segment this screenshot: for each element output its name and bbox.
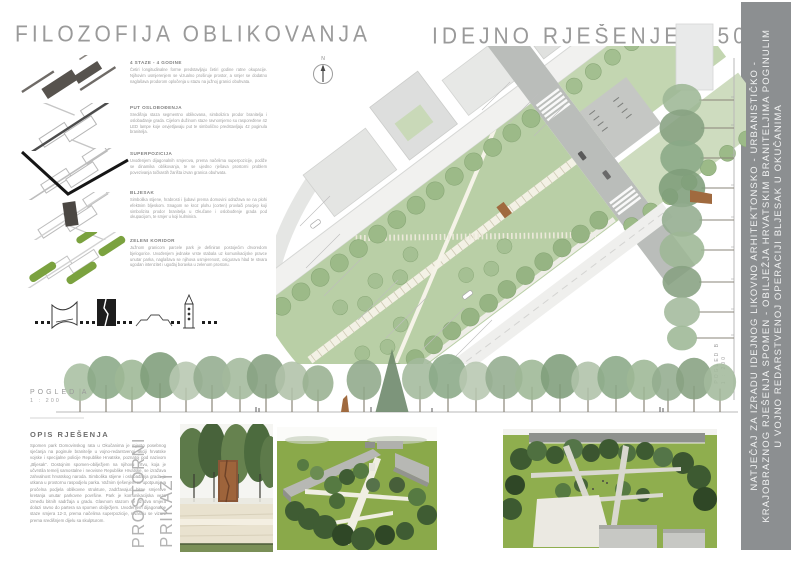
render-aerial-1 [277,427,437,550]
monument-solid-icon [97,299,116,326]
concept-diagram-5-zeleni-koridor [12,232,132,288]
section-heading: 4 STAZE - 4 GODINE [130,60,267,65]
concept-diagram-1-staze [12,55,132,107]
section-body: Južnom granicom parcele park je definira… [130,245,267,268]
section-heading: PUT OSLOBOĐENJA [130,105,267,110]
renders-label: PROSTORNI PRIKAZI [130,444,177,548]
north-arrow-icon: N [314,56,333,84]
tree-row-b [659,84,734,351]
church-tower-icon [183,295,195,328]
elevation-a [0,348,742,420]
banner-line-1: NATJEČAJ ZA IZRADU IDEJNOG LIKOVNO ARHIT… [749,61,760,491]
mound-outline-icon [136,315,172,326]
section-body: Uvođenjem dijagonalnih smjerova, prema n… [130,158,267,175]
people-silhouettes [256,407,663,412]
render-monument-view [180,424,273,552]
banner-line-3: U VOJNO REDARSTVENOJ OPERACIJI BLJESAK U… [773,104,784,448]
corten-monument-render [218,460,238,502]
tree-row-a [64,349,736,412]
section-marker [310,219,321,229]
competition-board: FILOZOFIJA OBLIKOVANJA IDEJNO RJEŠENJE 1… [0,0,800,562]
concept-section-bljesak: BLJESAK Simbolika stijene, hrabrosti i l… [130,190,267,220]
corten-monument-elevation-b [690,190,712,204]
concept-section-superpozicija: SUPERPOZICIJA Uvođenjem dijagonalnih smj… [130,151,267,175]
concept-section-staze: 4 STAZE - 4 GODINE Četiri longitudinalne… [130,60,267,84]
page-title-philosophy: FILOZOFIJA OBLIKOVANJA [15,22,371,48]
concept-diagram-2-put [12,103,132,151]
genius-loci-silhouette-strip [12,292,242,338]
render-aerial-2 [503,429,717,548]
road-band [529,433,705,443]
renders-label-line1: PROSTORNI [130,437,150,548]
concept-section-zeleni-koridor: ZELENI KORIDOR Južnom granicom parcele p… [130,238,267,268]
svg-text:N: N [321,56,325,62]
banner-line-2: KRAJOBRAZNOG RJEŠENJA SPOMEN - OBILJEŽJA… [761,29,772,523]
grass-strip [180,544,273,552]
section-body: Četiri longitudinalne forme predstavljaj… [130,67,267,84]
monument-small [369,463,375,471]
plaza [180,504,273,544]
elevation-a-title: POGLED A [30,389,89,396]
section-body: Simbolika stijene, hrabrosti i ljubavi p… [130,197,267,220]
section-heading: ZELENI KORIDOR [130,238,267,243]
monument-outline-icon [52,302,77,328]
competition-banner: NATJEČAJ ZA IZRADU IDEJNOG LIKOVNO ARHIT… [741,2,791,550]
renders-label-line2: PRIKAZI [158,473,178,548]
concept-section-put: PUT OSLOBOĐENJA Središnja staza segmentn… [130,105,267,135]
corten-monument-elevation-a [341,395,349,412]
section-heading: SUPERPOZICIJA [130,151,267,156]
building-elevation [676,24,713,90]
elevation-a-scale: 1 : 200 [30,398,89,404]
section-body: Središnja staza segmentno oblikovana, si… [130,112,267,135]
elevation-a-label: POGLED A 1 : 200 [30,389,89,404]
section-heading: BLJESAK [130,190,267,195]
